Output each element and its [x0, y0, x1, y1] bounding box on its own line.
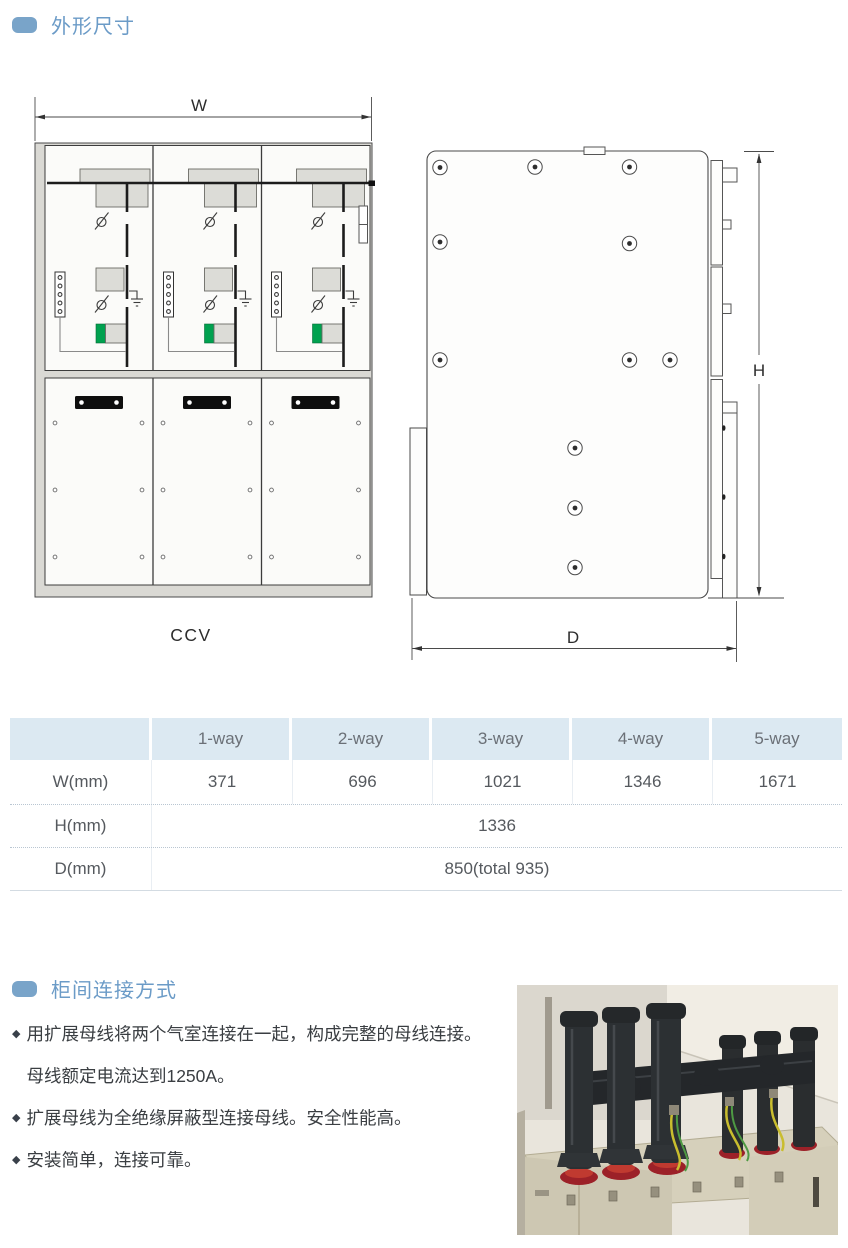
value-h-merged: 1336: [152, 805, 842, 847]
diamond-bullet-icon: ◆: [12, 1106, 20, 1130]
value-w-2way: 696: [292, 760, 432, 804]
diamond-bullet-icon: ◆: [12, 1022, 20, 1046]
front-view-label: CCV: [170, 625, 211, 645]
section-outline-dimensions-header: 外形尺寸: [12, 10, 135, 39]
table-corner-cell: [10, 718, 152, 760]
front-flange: [410, 428, 427, 595]
bullet-text: 用扩展母线将两个气室连接在一起，构成完整的母线连接。: [26, 1022, 481, 1046]
section-title: 外形尺寸: [51, 10, 135, 39]
col-header-1way: 1-way: [152, 718, 292, 760]
bullet-text: 安装简单，连接可靠。: [26, 1148, 201, 1172]
value-w-1way: 371: [152, 760, 292, 804]
section-bullet-icon: [12, 981, 37, 997]
col-header-3way: 3-way: [432, 718, 572, 760]
page: 外形尺寸: [0, 0, 848, 1248]
list-item: ◆ 安装简单，连接可靠。: [12, 1148, 508, 1172]
list-item: ◆ 扩展母线为全绝缘屏蔽型连接母线。安全性能高。: [12, 1106, 508, 1130]
door-section: [45, 378, 370, 585]
dimensions-table: 1-way 2-way 3-way 4-way 5-way W(mm) 371 …: [10, 718, 842, 891]
list-item: ◆ 用扩展母线将两个气室连接在一起，构成完整的母线连接。 母线额定电流达到125…: [12, 1022, 508, 1088]
col-header-2way: 2-way: [292, 718, 432, 760]
table-header-row: 1-way 2-way 3-way 4-way 5-way: [10, 718, 842, 760]
dim-w-label: W: [191, 96, 207, 115]
section-cabinet-connection-header: 柜间连接方式: [12, 974, 177, 1003]
dimension-h: H: [744, 152, 774, 597]
value-w-3way: 1021: [432, 760, 572, 804]
cabinet-connection-photo: [517, 985, 838, 1235]
front-view-drawing: W CCV: [35, 96, 375, 645]
section-title: 柜间连接方式: [51, 974, 177, 1003]
value-w-4way: 1346: [572, 760, 712, 804]
table-row-width: W(mm) 371 696 1021 1346 1671: [10, 760, 842, 805]
value-d-merged: 850(total 935): [152, 848, 842, 890]
dim-h-label: H: [753, 361, 765, 380]
table-row-depth: D(mm) 850(total 935): [10, 848, 842, 890]
col-header-4way: 4-way: [572, 718, 712, 760]
dimension-drawings: W CCV: [0, 85, 848, 685]
row-label-w: W(mm): [10, 760, 152, 804]
section-bullet-icon: [12, 17, 37, 33]
row-label-d: D(mm): [10, 848, 152, 890]
bullet-text: 母线额定电流达到1250A。: [26, 1064, 481, 1088]
dimension-w: W: [35, 96, 372, 141]
table-row-height: H(mm) 1336: [10, 805, 842, 848]
connection-bullet-list: ◆ 用扩展母线将两个气室连接在一起，构成完整的母线连接。 母线额定电流达到125…: [12, 1022, 508, 1172]
dim-d-label: D: [567, 628, 579, 647]
bullet-text: 扩展母线为全绝缘屏蔽型连接母线。安全性能高。: [26, 1106, 411, 1130]
lifting-tab: [584, 147, 605, 155]
row-label-h: H(mm): [10, 805, 152, 847]
side-body: [427, 151, 708, 598]
dimension-d: D: [412, 598, 737, 662]
col-header-5way: 5-way: [712, 718, 842, 760]
value-w-5way: 1671: [712, 760, 842, 804]
side-view-drawing: H D: [410, 147, 784, 662]
rear-rails: [711, 161, 737, 599]
diamond-bullet-icon: ◆: [12, 1148, 20, 1172]
